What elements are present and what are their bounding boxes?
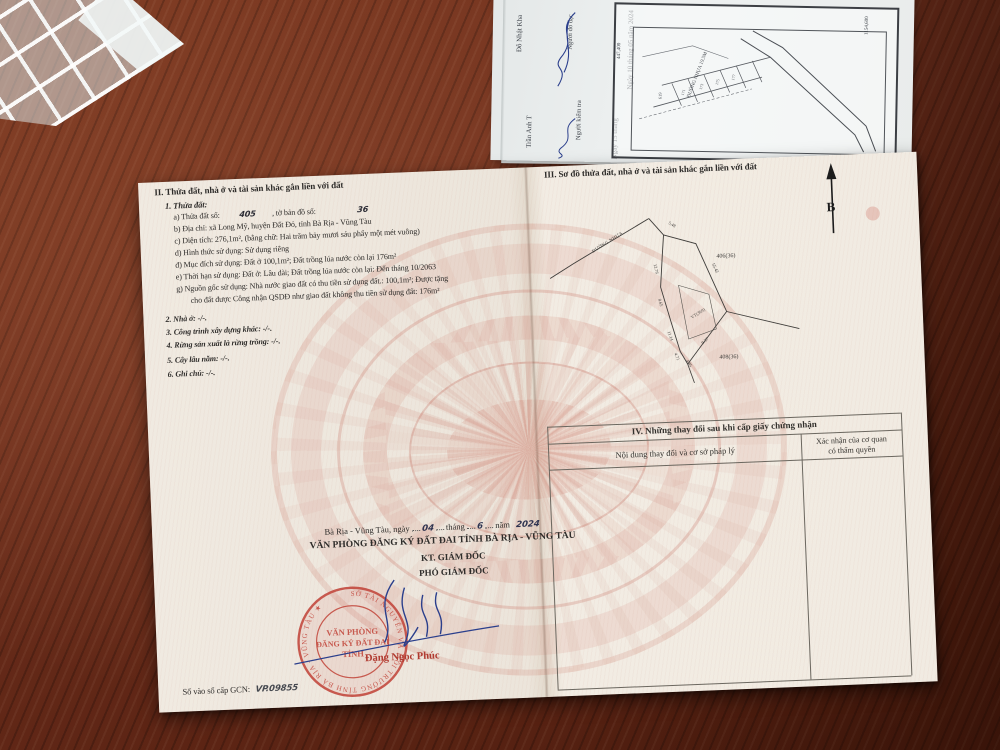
table-border-right [901, 413, 913, 676]
section2-item3: 3. Công trình xây dựng khác: -/-. [166, 324, 272, 337]
edge-l1: 12.76 [653, 264, 660, 276]
edge-top: 5.48 [668, 220, 678, 229]
book-entry-label: Số vào sổ cấp GCN: [182, 684, 250, 697]
issue-month-label: tháng [446, 521, 465, 532]
surveyor-signature [544, 6, 598, 95]
map-sheet-value: 36 [357, 205, 369, 214]
map-plot-2: 173 [698, 83, 704, 90]
parcel-408: 408(36) [719, 353, 738, 361]
map-sheet-label: , tờ bản đồ số: [272, 207, 316, 218]
map-sketch: ĐƯỜNG NHỰA 19.5M 619 171 173 175 177 [631, 27, 885, 154]
map-road-label: ĐƯỜNG NHỰA 19.5M [686, 51, 709, 99]
map-extract-paper: Ngày 10 tháng 05 năm 2024 Người đo đạc Đ… [490, 0, 914, 168]
section2-item6: 6. Ghi chú: -/-. [168, 368, 216, 379]
certificate-sheet: II. Thửa đất, nhà ở và tài sản khác gắn … [138, 152, 938, 713]
issue-day: 04 [421, 523, 434, 534]
parcel-diagram: B ĐƯỜNG NHỰA 5.48 55.42 12.76 8.65 11.14… [533, 152, 923, 422]
edge-right: 55.42 [711, 262, 720, 274]
red-smudge [866, 206, 881, 221]
map-plot-4: 177 [730, 74, 736, 81]
parcel-inner-label: VT(369) [690, 307, 707, 320]
surveyor-name: Đỗ Nhật Kha [515, 15, 524, 52]
paper-crease [500, 0, 506, 160]
issue-place-label: Bà Rịa - Vũng Tàu, ngày [324, 523, 409, 536]
section4-col1-header: Nội dung thay đổi và cơ sở pháp lý [553, 443, 797, 463]
road-label: ĐƯỜNG NHỰA [591, 230, 624, 253]
map-coordinate-x: 447,400 [617, 43, 622, 59]
map-plot-1: 171 [680, 89, 686, 96]
issue-year-label: năm [495, 519, 510, 530]
edge-b1: 4.85 [685, 359, 694, 369]
section2-item1: 1. Thửa đất: [165, 199, 208, 211]
checker-name: Trần Anh T [525, 115, 534, 147]
section2-line-d: d) Hình thức sử dụng: Sử dụng riêng [175, 244, 289, 258]
table-column-divider [801, 434, 812, 680]
parcel-406: 406(36) [716, 252, 735, 260]
parcel-number-label: a) Thửa đất số: [173, 211, 220, 222]
edge-l2: 8.65 [657, 298, 664, 308]
issue-month: 6 [477, 521, 484, 531]
map-plot-3: 175 [714, 78, 720, 85]
section2-item5: 5. Cây lâu năm: -/-. [167, 353, 230, 364]
parcel-number-value: 405 [239, 209, 256, 219]
map-parcel-a: 619 [658, 92, 663, 100]
section2-title: II. Thửa đất, nhà ở và tài sản khác gắn … [154, 180, 343, 198]
issue-year: 2024 [515, 519, 540, 530]
section2-item4: 4. Rừng sản xuất là rừng trồng: -/-. [166, 336, 280, 350]
map-frame: 447,400 1154,600 ĐƯỜNG NHỰA 19.5M 619 17… [611, 2, 899, 163]
north-label: B [826, 199, 836, 214]
edge-l4: 4.71 [673, 352, 681, 361]
checker-signature [546, 114, 587, 161]
edge-b2: 9.37 [700, 336, 710, 345]
edge-l3: 11.14 [666, 330, 674, 342]
book-entry-value: VP.09855 [255, 683, 299, 695]
section2-item2: 2. Nhà ở: -/-. [165, 313, 207, 324]
